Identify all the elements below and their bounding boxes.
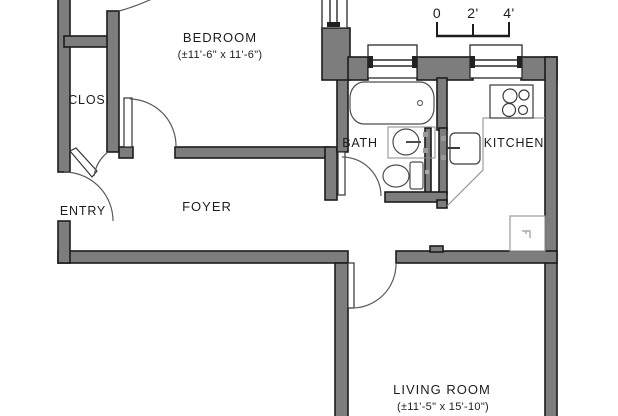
entry-label: ENTRY	[60, 204, 106, 218]
living-room-door	[348, 263, 396, 308]
living-room-label: LIVING ROOM	[393, 382, 491, 397]
wall-closet-right	[107, 11, 119, 152]
foyer-label: FOYER	[182, 199, 232, 214]
scale-tick-2: 2'	[467, 5, 478, 21]
wall-entry-stub	[58, 221, 70, 263]
bathtub-icon	[350, 82, 434, 124]
floor-plan-drawing: 0 2' 4' BEDROOM (±11'-6" x 11'-6") CLOS.…	[0, 0, 618, 416]
bedroom-top-door-arc	[119, 0, 152, 11]
bedroom-lower-door	[124, 98, 176, 147]
kitchen-label: KITCHEN	[484, 136, 544, 150]
bedroom-right-window	[322, 0, 347, 28]
wall-bedroom-right-chunk	[322, 28, 350, 80]
wall-bath-bottom-stub	[437, 200, 447, 208]
closet-label: CLOS.	[68, 93, 110, 107]
toilet-icon	[383, 162, 429, 189]
wall-kitchen-living-divider	[396, 251, 557, 263]
bath-door	[338, 152, 381, 196]
closet-door	[70, 148, 108, 177]
wall-top-arm	[348, 57, 368, 80]
scale-bar	[436, 22, 510, 36]
bedroom-label: BEDROOM	[183, 30, 257, 45]
wall-bath-kitchen-strip-left	[425, 128, 431, 194]
wall-bedroom-foyer-divider	[175, 147, 330, 158]
wall-closet-top-divider	[64, 36, 109, 47]
wall-living-door-bump	[430, 246, 443, 252]
wall-bath-kitchen-divider-upper	[437, 78, 447, 130]
bath-label: BATH	[342, 136, 378, 150]
wall-left-outer	[58, 0, 70, 172]
wall-living-left	[335, 263, 348, 416]
stove-icon	[490, 85, 533, 118]
scale-tick-4: 4'	[503, 5, 514, 21]
living-room-dims: (±11'-5" x 15'-10")	[397, 401, 489, 413]
wall-top-between-windows	[417, 57, 473, 80]
bath-window	[368, 45, 417, 78]
kitchen-window	[470, 45, 522, 78]
refrigerator-icon	[510, 216, 545, 251]
wall-right-outer	[545, 57, 557, 416]
wall-bedroom-door-jamb	[119, 147, 133, 158]
wall-bath-hinge-pier	[325, 147, 337, 200]
kitchen-fixtures	[441, 85, 545, 251]
scale-tick-0: 0	[433, 5, 441, 21]
bedroom-dims: (±11'-6" x 11'-6")	[178, 49, 263, 61]
wall-foyer-bottom	[58, 251, 348, 263]
floor-plan: 0 2' 4' BEDROOM (±11'-6" x 11'-6") CLOS.…	[0, 0, 618, 416]
